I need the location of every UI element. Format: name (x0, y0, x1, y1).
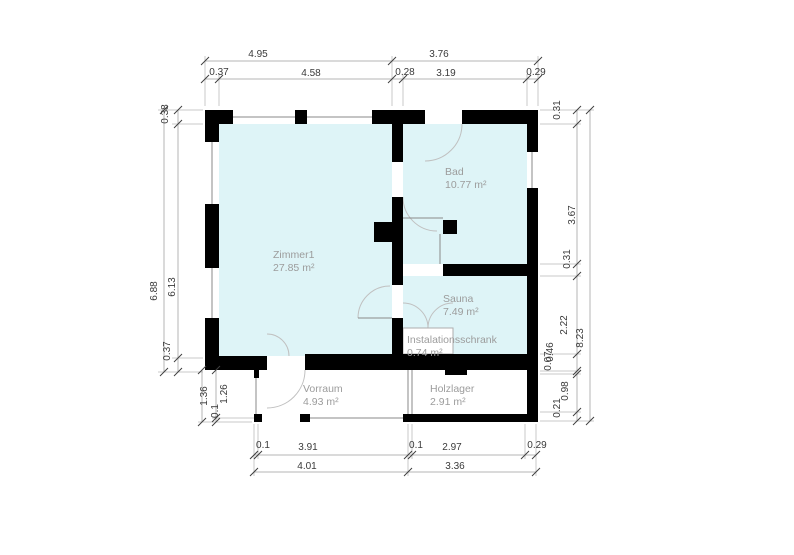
room-fill-bad (403, 124, 527, 264)
room-area-zimmer1: 27.85 m² (273, 262, 315, 274)
dimension-label: 0.07 (543, 351, 554, 371)
dimension-label: 0.37 (162, 341, 173, 361)
dimension-label: 0.29 (527, 440, 547, 451)
wall-segment (392, 124, 403, 162)
floor-plan: 4.953.760.374.580.283.190.290.386.886.13… (0, 0, 794, 555)
dimension-label: 0.28 (395, 67, 415, 78)
wall-segment (254, 414, 262, 422)
wall-segment (205, 124, 219, 142)
wall-segment (300, 414, 310, 422)
wall-segment (443, 264, 538, 276)
dimension-label: 0.21 (552, 398, 563, 418)
dimension-label: 3.67 (567, 205, 578, 225)
wall-segment (443, 220, 457, 234)
dimension-label: 1.36 (199, 386, 210, 406)
wall-segment (403, 414, 538, 422)
dimension-label: 3.76 (429, 49, 449, 60)
dimension-label: 4.58 (301, 68, 321, 79)
room-area-vorraum: 4.93 m² (303, 396, 339, 408)
dimension-label: 3.36 (445, 461, 465, 472)
wall-segment (372, 110, 425, 124)
wall-segment (254, 370, 259, 378)
dimension-label: 0.31 (552, 100, 563, 120)
dimension-label: 0.1 (256, 440, 270, 451)
floor-plan-page: 4.953.760.374.580.283.190.290.386.886.13… (0, 0, 794, 555)
dimension-label: 6.13 (167, 277, 178, 297)
dimension-label: 3.19 (436, 68, 456, 79)
room-area-instalationsschrank: 0.74 m² (407, 347, 443, 359)
wall-segment (445, 370, 467, 375)
dimension-label: 1.26 (219, 384, 230, 404)
room-label-zimmer1: Zimmer1 (273, 249, 315, 261)
dimension-label: 0.31 (562, 249, 573, 269)
room-label-bad: Bad (445, 166, 464, 178)
wall-segment (295, 110, 307, 124)
dimension-label: 2.97 (442, 442, 462, 453)
room-label-holzlager: Holzlager (430, 383, 475, 395)
wall-segment (205, 110, 233, 124)
dimension-label: 6.88 (149, 281, 160, 301)
dimension-label: 2.22 (559, 315, 570, 335)
wall-segment (205, 204, 219, 268)
door-arc (267, 370, 305, 408)
dimension-label: 0.1 (210, 404, 221, 418)
dimension-label: 0.37 (209, 67, 229, 78)
dimension-label: 0.29 (526, 67, 546, 78)
wall-segment (527, 110, 538, 152)
dimension-label: 0.1 (409, 440, 423, 451)
wall-segment (527, 188, 538, 264)
room-fill-zimmer1 (219, 124, 392, 356)
room-label-vorraum: Vorraum (303, 383, 343, 395)
wall-segment (205, 356, 267, 370)
dimension-label: 4.95 (248, 49, 268, 60)
room-area-holzlager: 2.91 m² (430, 396, 466, 408)
room-area-sauna: 7.49 m² (443, 306, 479, 318)
room-label-instalationsschrank: Instalationsschrank (407, 334, 498, 346)
dimension-label: 0.38 (160, 104, 171, 124)
wall-segment (205, 318, 219, 356)
dimension-label: 8.23 (575, 328, 586, 348)
room-area-bad: 10.77 m² (445, 179, 487, 191)
wall-segment (392, 318, 403, 356)
wall-segment (374, 222, 392, 242)
dimension-label: 3.91 (298, 442, 318, 453)
room-label-sauna: Sauna (443, 293, 474, 305)
wall-segment (527, 264, 538, 422)
dimension-label: 4.01 (297, 461, 317, 472)
dimension-label: 0.98 (560, 381, 571, 401)
wall-segment (392, 197, 403, 285)
wall-segment (462, 110, 538, 124)
